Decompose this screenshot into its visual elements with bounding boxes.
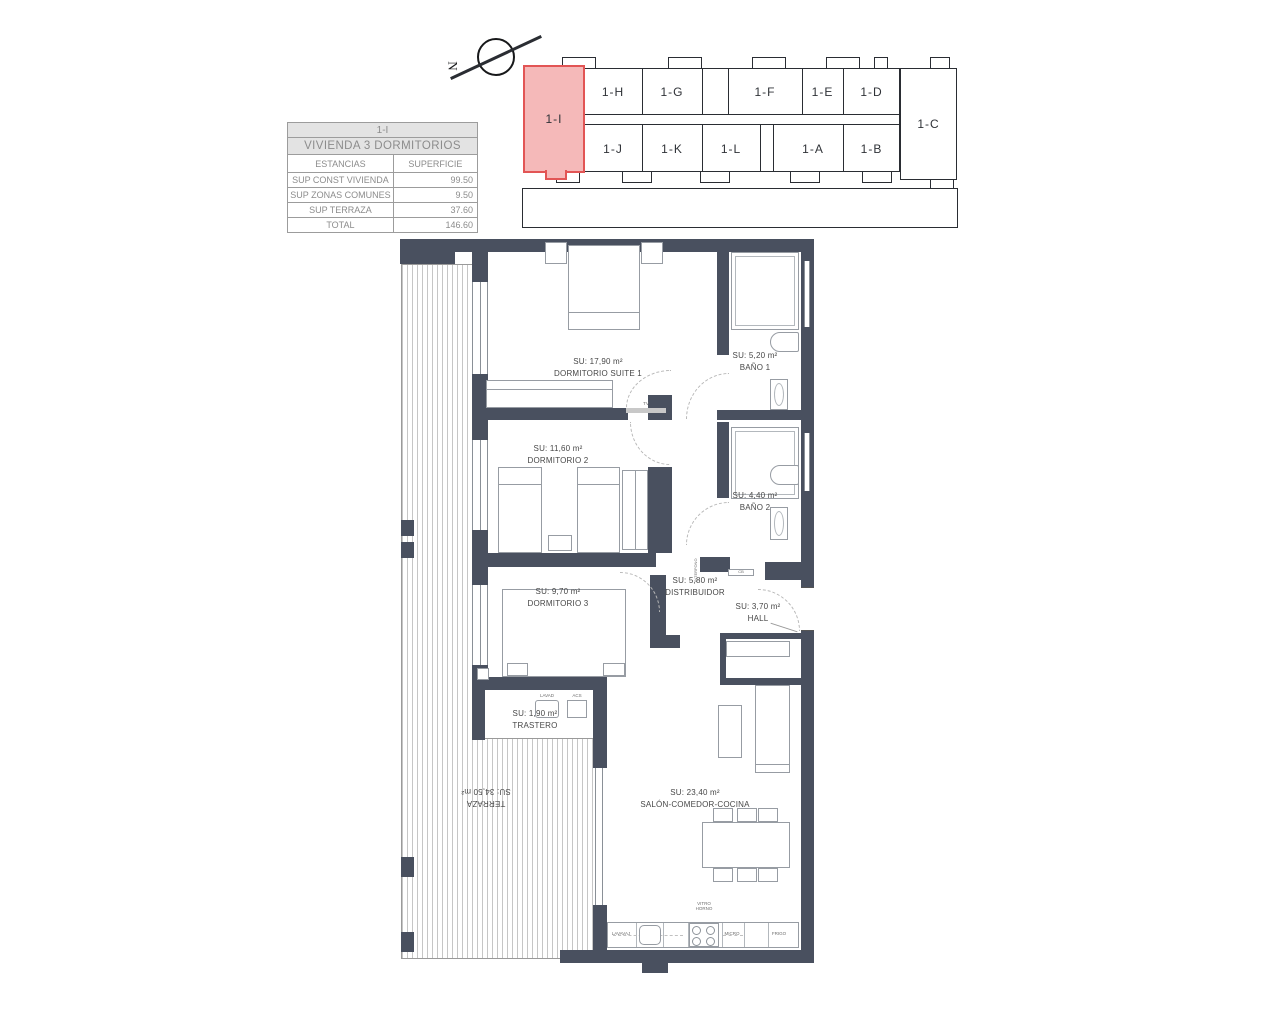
wall-pillar <box>477 668 489 680</box>
room-area: SU: 23,40 m² <box>605 787 785 799</box>
shape <box>692 926 701 935</box>
cell-divider <box>702 68 703 115</box>
table-unit-code: 1-I <box>288 123 477 137</box>
window <box>804 433 810 491</box>
room-name: DORMITORIO 3 <box>478 598 638 610</box>
shape <box>774 511 784 536</box>
keyplan-unit-1L[interactable]: 1-L <box>702 125 760 172</box>
wall-segment <box>472 690 485 740</box>
wall-segment <box>593 690 607 768</box>
stair-core <box>790 171 820 183</box>
room-name: BAÑO 1 <box>715 362 795 374</box>
keyplan-unit-1D[interactable]: 1-D <box>843 68 900 115</box>
wall-segment <box>650 635 680 648</box>
vitro-label: VITRO HORNO <box>689 901 719 912</box>
wardrobe-suite <box>486 380 613 408</box>
key-plan: N 1-I 1-H <box>0 0 1280 240</box>
wall-segment <box>560 950 814 963</box>
table-title: VIVIENDA 3 DORMITORIOS <box>288 138 477 154</box>
room-label-hall: SU: 3,70 m² HALL <box>718 601 798 625</box>
window <box>595 768 603 905</box>
room-name: BAÑO 2 <box>715 502 795 514</box>
wall-segment <box>472 553 656 567</box>
room-area: SU: 17,90 m² <box>518 356 678 368</box>
room-name: DORMITORIO SUITE 1 <box>518 368 678 380</box>
floor-plan: TV CB IN <box>398 237 814 967</box>
room-label-distribuidor: SU: 5,80 m² DISTRIBUIDOR <box>645 575 745 599</box>
nightstand <box>641 242 663 264</box>
shower-bano1 <box>731 252 799 330</box>
keyplan-unit-1A[interactable]: 1-A <box>783 125 843 172</box>
wall-segment <box>401 857 414 877</box>
keyplan-unit-1E[interactable]: 1-E <box>802 68 843 115</box>
shape <box>735 431 795 495</box>
chair <box>713 868 733 882</box>
room-label-dormitorio-3: SU: 9,70 m² DORMITORIO 3 <box>478 586 638 610</box>
terrace-decking <box>401 264 472 690</box>
wardrobe-dorm2 <box>622 470 648 550</box>
acs-label: ACS <box>565 693 589 698</box>
pillow <box>507 663 528 676</box>
cooktop <box>689 923 719 947</box>
chair <box>737 868 757 882</box>
plan-sheet: N 1-I 1-H <box>0 0 1280 1024</box>
wall-segment <box>717 422 729 498</box>
keyplan-unit-1J[interactable]: 1-J <box>584 125 642 172</box>
shape <box>499 484 541 485</box>
room-area: SU: 34,50 m² <box>436 785 536 797</box>
keyplan-unit-1K[interactable]: 1-K <box>642 125 702 172</box>
shape <box>692 937 701 946</box>
keyplan-unit-1I[interactable]: 1-I <box>523 65 585 173</box>
cell-divider <box>760 125 761 172</box>
room-label-trastero: SU: 1,90 m² TRASTERO <box>485 708 585 732</box>
room-name: SALÓN-COMEDOR-COCINA <box>605 799 785 811</box>
room-label-salon-comedor-cocina: SU: 23,40 m² SALÓN-COMEDOR-COCINA <box>605 787 785 811</box>
wall-segment <box>648 467 672 553</box>
podium-outline <box>522 188 958 228</box>
area-table: 1-I VIVIENDA 3 DORMITORIOS ESTANCIAS SUP… <box>287 122 478 233</box>
row-label: TOTAL <box>288 218 394 232</box>
room-label-dormitorio-2: SU: 11,60 m² DORMITORIO 2 <box>478 443 638 467</box>
chair <box>758 868 778 882</box>
keyplan-unit-1G[interactable]: 1-G <box>642 68 702 115</box>
table-row: SUP CONST VIVIENDA 99.50 <box>288 172 477 187</box>
armchair <box>718 705 742 758</box>
row-label: SUP ZONAS COMUNES <box>288 188 394 202</box>
dining-table <box>702 822 790 868</box>
tv-shelf <box>626 408 666 413</box>
wall-segment <box>765 562 801 580</box>
room-name: DISTRIBUIDOR <box>645 587 745 599</box>
window <box>804 261 810 327</box>
table-unit-row: 1-I <box>288 123 477 137</box>
frigo-label: FRIGO <box>764 931 794 936</box>
room-area: SU: 3,70 m² <box>718 601 798 613</box>
room-name: HALL <box>718 613 798 625</box>
table-row: SUP TERRAZA 37.60 <box>288 202 477 217</box>
room-name: TRASTERO <box>485 720 585 732</box>
keyplan-unit-1B[interactable]: 1-B <box>843 125 900 172</box>
row-value: 9.50 <box>394 188 477 202</box>
bed-suite <box>568 245 640 330</box>
keyplan-unit-1C[interactable]: 1-C <box>900 68 957 180</box>
room-label-dormitorio-suite-1: SU: 17,90 m² DORMITORIO SUITE 1 <box>518 356 678 380</box>
room-area: SU: 11,60 m² <box>478 443 638 455</box>
sofa <box>755 685 790 773</box>
shape <box>706 926 715 935</box>
shape <box>635 471 636 549</box>
wall-segment <box>720 678 801 685</box>
room-area: SU: 5,20 m² <box>715 350 795 362</box>
window <box>472 282 488 374</box>
wall-segment <box>400 239 455 264</box>
room-name: TERRAZA <box>436 797 536 809</box>
wall-segment <box>700 557 730 572</box>
row-label: SUP CONST VIVIENDA <box>288 173 394 187</box>
lavavajillas-label: LAVAVAJ <box>604 931 638 936</box>
wall-segment <box>717 252 729 355</box>
pillow <box>603 663 625 676</box>
wall-segment <box>401 520 414 536</box>
wall-segment <box>401 932 414 952</box>
shape <box>735 256 795 326</box>
vitro-line2: HORNO <box>689 906 719 911</box>
shape <box>487 389 612 390</box>
shape <box>774 383 784 406</box>
bed-dorm2 <box>498 467 542 553</box>
row-label: SUP TERRAZA <box>288 203 394 217</box>
wall-segment <box>472 677 607 690</box>
col-estancias: ESTANCIAS <box>288 155 394 172</box>
keyplan-unit-1H[interactable]: 1-H <box>584 68 642 115</box>
stair-core <box>862 171 892 183</box>
shape <box>578 484 619 485</box>
room-label-terraza: TERRAZA SU: 34,50 m² <box>436 785 536 809</box>
toilet-bano2 <box>770 465 799 485</box>
stair-core <box>622 171 652 183</box>
wall-segment <box>717 410 801 420</box>
room-name: DORMITORIO 2 <box>478 455 638 467</box>
lavadora-label: LAVAD <box>532 693 562 698</box>
toilet-bano1 <box>770 332 799 352</box>
room-area: SU: 4,40 m² <box>715 490 795 502</box>
row-value: 146.60 <box>394 218 477 232</box>
bedside-table <box>548 535 572 551</box>
shape <box>706 937 715 946</box>
room-label-bano-2: SU: 4,40 m² BAÑO 2 <box>715 490 795 514</box>
cb-label: CB <box>728 570 754 575</box>
room-area: SU: 5,80 m² <box>645 575 745 587</box>
row-value: 37.60 <box>394 203 477 217</box>
cell-divider <box>773 125 774 172</box>
room-area: SU: 9,70 m² <box>478 586 638 598</box>
wall-segment <box>401 542 414 558</box>
shape <box>569 312 639 313</box>
north-label: N <box>445 61 461 70</box>
entry-door-gap <box>801 587 814 631</box>
micro-label: MICRO <box>718 931 746 936</box>
col-superficie: SUPERFICIE <box>394 155 477 172</box>
kitchen-sink <box>639 925 661 945</box>
sink-bano1 <box>770 379 788 410</box>
nightstand <box>545 242 567 264</box>
table-title-row: VIVIENDA 3 DORMITORIOS <box>288 137 477 154</box>
room-area: SU: 1,90 m² <box>485 708 585 720</box>
shower-bano2 <box>731 427 799 499</box>
shape <box>756 764 789 765</box>
closet-interior <box>726 641 790 657</box>
table-row: SUP ZONAS COMUNES 9.50 <box>288 187 477 202</box>
wall-segment <box>642 963 668 973</box>
wall-segment <box>593 905 607 950</box>
table-header-row: ESTANCIAS SUPERFICIE <box>288 154 477 172</box>
row-value: 99.50 <box>394 173 477 187</box>
wall-segment <box>472 408 628 420</box>
bed-dorm2 <box>577 467 620 553</box>
door-arc <box>686 373 729 419</box>
keyplan-unit-1F[interactable]: 1-F <box>728 68 802 115</box>
room-label-bano-1: SU: 5,20 m² BAÑO 1 <box>715 350 795 374</box>
stair-core <box>700 171 730 183</box>
wall-segment <box>720 633 801 639</box>
table-row: TOTAL 146.60 <box>288 217 477 232</box>
